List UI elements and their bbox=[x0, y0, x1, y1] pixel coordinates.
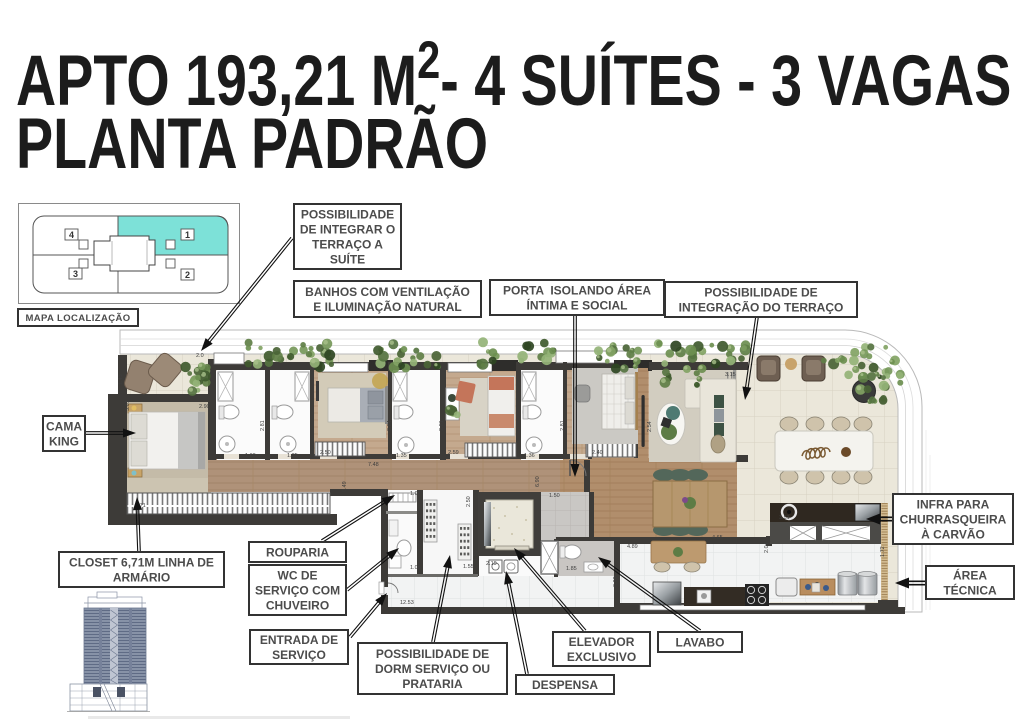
svg-text:0.99: 0.99 bbox=[613, 576, 619, 587]
svg-text:ARMÁRIO: ARMÁRIO bbox=[113, 569, 170, 584]
svg-text:2.40: 2.40 bbox=[592, 450, 603, 456]
svg-text:2.0: 2.0 bbox=[196, 353, 204, 359]
svg-text:PRATARIA: PRATARIA bbox=[402, 677, 463, 691]
svg-text:CLOSET 6,71M LINHA DE: CLOSET 6,71M LINHA DE bbox=[69, 555, 214, 569]
svg-text:1: 1 bbox=[185, 230, 190, 240]
svg-text:DE INTEGRAR O: DE INTEGRAR O bbox=[300, 222, 395, 236]
svg-text:2.81: 2.81 bbox=[260, 420, 266, 431]
svg-text:2.81: 2.81 bbox=[560, 420, 566, 431]
svg-text:2.90: 2.90 bbox=[199, 404, 210, 410]
svg-text:4.65: 4.65 bbox=[712, 535, 723, 541]
svg-text:2.81: 2.81 bbox=[439, 420, 445, 431]
svg-text:0.49: 0.49 bbox=[342, 481, 348, 492]
svg-text:12.53: 12.53 bbox=[400, 600, 414, 606]
svg-text:1.55: 1.55 bbox=[463, 564, 474, 570]
svg-text:POSSIBILIDADE DE: POSSIBILIDADE DE bbox=[704, 285, 817, 299]
svg-text:1.36: 1.36 bbox=[524, 453, 535, 459]
svg-text:POSSIBILIDADE: POSSIBILIDADE bbox=[301, 207, 394, 221]
svg-text:INTEGRAÇÃO DO TERRAÇO: INTEGRAÇÃO DO TERRAÇO bbox=[679, 299, 844, 314]
svg-text:TERRAÇO A: TERRAÇO A bbox=[312, 237, 383, 251]
svg-text:CHURRASQUEIRA: CHURRASQUEIRA bbox=[900, 512, 1007, 526]
svg-text:TÉCNICA: TÉCNICA bbox=[943, 582, 997, 597]
svg-text:BANHOS COM VENTILAÇÃO: BANHOS COM VENTILAÇÃO bbox=[305, 284, 470, 299]
svg-text:EXCLUSIVO: EXCLUSIVO bbox=[567, 650, 636, 664]
svg-text:2.50: 2.50 bbox=[466, 496, 472, 507]
svg-text:1.35: 1.35 bbox=[287, 453, 298, 459]
svg-text:1.05: 1.05 bbox=[410, 565, 421, 571]
svg-text:POSSIBILIDADE DE: POSSIBILIDADE DE bbox=[376, 647, 489, 661]
svg-text:1.43: 1.43 bbox=[118, 374, 124, 385]
svg-text:ÁREA: ÁREA bbox=[953, 567, 987, 582]
svg-text:SERVIÇO: SERVIÇO bbox=[272, 648, 326, 662]
svg-text:2.19: 2.19 bbox=[486, 561, 497, 567]
svg-text:2.84: 2.84 bbox=[387, 420, 393, 431]
svg-text:6.90: 6.90 bbox=[535, 476, 541, 487]
svg-text:KING: KING bbox=[49, 434, 79, 448]
svg-text:1.53: 1.53 bbox=[473, 550, 479, 561]
svg-text:3: 3 bbox=[73, 269, 78, 279]
svg-text:2.59: 2.59 bbox=[448, 450, 459, 456]
svg-text:DESPENSA: DESPENSA bbox=[532, 678, 598, 692]
svg-text:DORM SERVIÇO OU: DORM SERVIÇO OU bbox=[375, 662, 490, 676]
svg-text:1.60: 1.60 bbox=[245, 453, 256, 459]
svg-text:1.85: 1.85 bbox=[566, 566, 577, 572]
svg-text:7.48: 7.48 bbox=[368, 462, 379, 468]
svg-text:PLANTA PADRÃO: PLANTA PADRÃO bbox=[16, 103, 488, 183]
svg-text:4: 4 bbox=[69, 230, 74, 240]
svg-text:2.50: 2.50 bbox=[320, 450, 331, 456]
svg-text:CAMA: CAMA bbox=[46, 419, 82, 433]
svg-text:1.97: 1.97 bbox=[417, 540, 423, 551]
svg-text:ÍNTIMA E SOCIAL: ÍNTIMA E SOCIAL bbox=[527, 297, 628, 312]
svg-text:E ILUMINAÇÃO NATURAL: E ILUMINAÇÃO NATURAL bbox=[313, 299, 461, 314]
svg-text:3.61: 3.61 bbox=[125, 400, 131, 411]
svg-text:SUÍTE: SUÍTE bbox=[330, 251, 365, 266]
svg-text:1.07: 1.07 bbox=[410, 491, 421, 497]
svg-text:WC DE: WC DE bbox=[278, 568, 318, 582]
svg-text:4.89: 4.89 bbox=[627, 544, 638, 550]
svg-text:SERVIÇO COM: SERVIÇO COM bbox=[255, 583, 340, 597]
svg-text:ENTRADA DE: ENTRADA DE bbox=[260, 633, 338, 647]
svg-text:MAPA LOCALIZAÇÃO: MAPA LOCALIZAÇÃO bbox=[25, 313, 130, 324]
svg-text:2: 2 bbox=[185, 270, 190, 280]
svg-text:2.54: 2.54 bbox=[647, 421, 653, 432]
svg-text:À CARVÃO: À CARVÃO bbox=[921, 526, 985, 541]
svg-text:1.35: 1.35 bbox=[396, 453, 407, 459]
svg-text:1.72: 1.72 bbox=[880, 546, 886, 557]
svg-text:3.15: 3.15 bbox=[725, 372, 736, 378]
svg-text:CHUVEIRO: CHUVEIRO bbox=[266, 598, 329, 612]
svg-text:ELEVADOR: ELEVADOR bbox=[569, 635, 635, 649]
svg-text:1.50: 1.50 bbox=[549, 493, 560, 499]
svg-text:PORTA ISOLANDO ÁREA: PORTA ISOLANDO ÁREA bbox=[503, 282, 651, 297]
svg-text:ROUPARIA: ROUPARIA bbox=[266, 545, 329, 559]
svg-text:3.51: 3.51 bbox=[779, 515, 790, 521]
svg-text:LAVABO: LAVABO bbox=[676, 635, 725, 649]
svg-text:INFRA PARA: INFRA PARA bbox=[917, 497, 990, 511]
svg-text:2.04: 2.04 bbox=[764, 542, 770, 553]
